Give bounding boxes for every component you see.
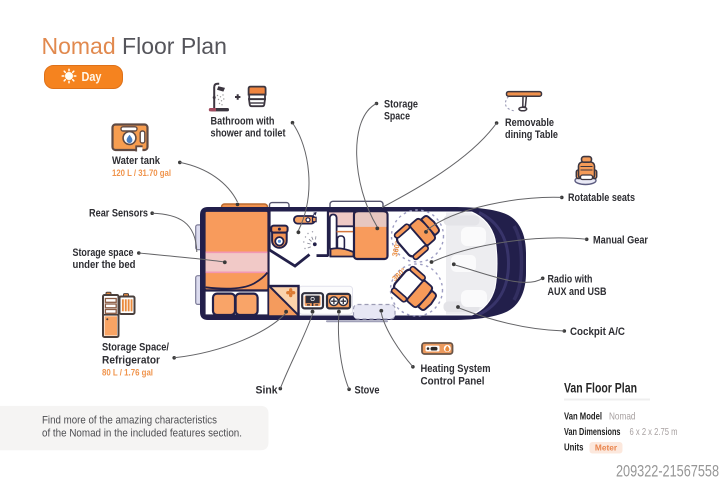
svg-text:Cockpit A/C: Cockpit A/C <box>570 326 625 338</box>
svg-text:Storage space: Storage space <box>73 247 134 259</box>
svg-text:Van Floor Plan: Van Floor Plan <box>564 381 637 396</box>
svg-text:Units: Units <box>564 443 584 454</box>
svg-text:Removable: Removable <box>505 117 554 129</box>
svg-text:Stove: Stove <box>355 385 380 397</box>
svg-text:Van Dimensions: Van Dimensions <box>564 427 621 438</box>
svg-text:Storage Space/: Storage Space/ <box>102 342 169 354</box>
svg-text:Nomad: Nomad <box>609 412 636 423</box>
svg-text:Manual Gear: Manual Gear <box>593 235 649 247</box>
svg-text:80 L / 1.76 gal: 80 L / 1.76 gal <box>102 368 153 378</box>
svg-text:Day: Day <box>82 70 102 84</box>
svg-text:Radio with: Radio with <box>548 274 593 286</box>
svg-text:Sink: Sink <box>256 385 279 397</box>
svg-text:6 x 2 x 2.75 m: 6 x 2 x 2.75 m <box>630 427 678 438</box>
svg-text:120 L / 31.70 gal: 120 L / 31.70 gal <box>112 168 171 178</box>
svg-text:Storage: Storage <box>384 99 418 111</box>
svg-text:209322-21567558: 209322-21567558 <box>616 463 719 480</box>
svg-text:Control Panel: Control Panel <box>421 376 485 388</box>
svg-text:Find more of the amazing chara: Find more of the amazing characteristics <box>42 415 218 427</box>
svg-text:Refrigerator: Refrigerator <box>102 355 161 367</box>
svg-text:under the bed: under the bed <box>73 259 136 271</box>
svg-text:Rotatable seats: Rotatable seats <box>568 192 635 204</box>
svg-text:Rear Sensors: Rear Sensors <box>89 208 148 220</box>
svg-text:dining Table: dining Table <box>505 129 558 141</box>
svg-text:Space: Space <box>384 111 410 123</box>
svg-text:AUX and USB: AUX and USB <box>548 286 607 298</box>
svg-text:Water tank: Water tank <box>112 155 161 167</box>
svg-text:of the Nomad in the included f: of the Nomad in the included features se… <box>42 428 242 440</box>
svg-text:shower and toilet: shower and toilet <box>211 128 286 140</box>
svg-text:Van Model: Van Model <box>564 412 602 423</box>
svg-text:Heating System: Heating System <box>421 363 491 375</box>
svg-text:Meter: Meter <box>595 442 618 452</box>
svg-text:Bathroom with: Bathroom with <box>211 116 275 128</box>
svg-text:Nomad Floor Plan: Nomad Floor Plan <box>42 33 227 59</box>
